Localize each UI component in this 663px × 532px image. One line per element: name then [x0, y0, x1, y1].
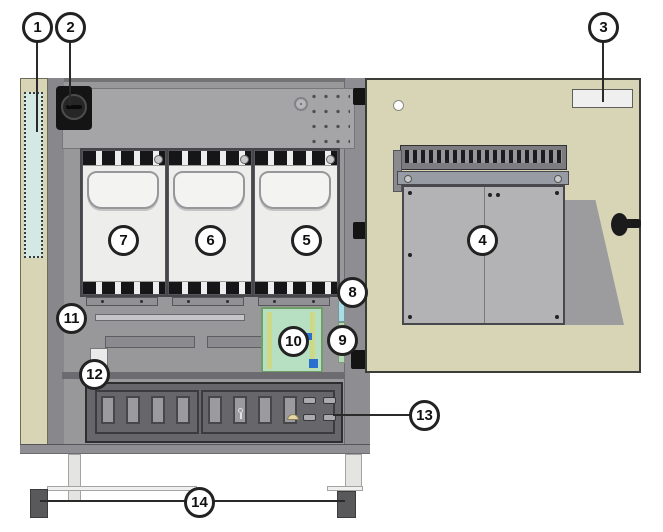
leader-line-2: [69, 42, 71, 106]
door-hole-icon: [393, 100, 404, 111]
callout-12: 12: [79, 359, 110, 390]
breaker-slot: [126, 396, 140, 424]
callout-2: 2: [55, 12, 86, 43]
main-switch-knob-icon: [61, 94, 87, 120]
callout-9: 9: [327, 325, 358, 356]
door-box-vent: [400, 145, 567, 170]
breaker-slot: [176, 396, 190, 424]
breaker-slot: [151, 396, 165, 424]
breaker-slot: [258, 396, 272, 424]
screw-icon: [496, 193, 500, 197]
module-vent-bottom: [255, 281, 337, 294]
screw-icon: [555, 315, 559, 319]
leader-line-13: [333, 414, 411, 416]
breaker-slot: [208, 396, 222, 424]
door-box-rail: [397, 171, 569, 185]
callout-3: 3: [588, 12, 619, 43]
led-dot-grid: [306, 87, 350, 145]
module-handle: [259, 171, 331, 209]
callout-5: 5: [291, 225, 322, 256]
busbar: [95, 314, 245, 321]
callout-11: 11: [56, 303, 87, 334]
module-5: [254, 150, 338, 295]
callout-1: 1: [22, 12, 53, 43]
connector-port: [323, 397, 336, 404]
callout-10: 10: [278, 326, 309, 357]
screw-icon: [488, 193, 492, 197]
module-vent-top: [83, 151, 165, 166]
mounting-rail: [86, 297, 158, 306]
module-vent-bottom: [169, 281, 251, 294]
pcb-chip: [309, 359, 318, 368]
connector-port: [303, 397, 316, 404]
module-handle: [173, 171, 245, 209]
callout-14: 14: [184, 487, 215, 518]
dome-icon: [287, 414, 299, 420]
module-vent-top: [169, 151, 251, 166]
main-switch: [56, 86, 92, 130]
mounting-rail: [172, 297, 244, 306]
module-vent-bottom: [83, 281, 165, 294]
callout-7: 7: [108, 225, 139, 256]
connector-port: [303, 414, 316, 421]
module-7: [82, 150, 166, 295]
hinge-icon: [351, 350, 366, 369]
filter-region-dashed: [24, 92, 43, 258]
callout-4: 4: [467, 225, 498, 256]
cabinet-foot-right: [337, 491, 356, 518]
pcb-connector-strip: [267, 312, 272, 369]
module-vent-top: [255, 151, 337, 166]
callout-13: 13: [409, 400, 440, 431]
leader-line-3: [602, 42, 604, 102]
screw-icon: [408, 253, 412, 257]
distribution-panel: [85, 382, 343, 443]
screw-icon: [555, 191, 559, 195]
mounting-rail: [258, 297, 330, 306]
leader-line-1: [36, 42, 38, 132]
cable-slot: [105, 336, 195, 348]
breaker-slot: [101, 396, 115, 424]
callout-6: 6: [195, 225, 226, 256]
door-lock-bar-icon: [625, 219, 641, 228]
screw-icon: [408, 315, 412, 319]
cabinet-foot-left: [30, 489, 48, 518]
module-6: [168, 150, 252, 295]
screw-icon: [408, 191, 412, 195]
stand-ledge-left: [47, 486, 197, 491]
cabinet-diagram: 1 2 3 4 5 6 7 8 9 10 11 12 13 14: [0, 0, 663, 532]
key-icon: [238, 408, 243, 413]
stand-upright-right: [345, 454, 362, 488]
stand-upright-left: [68, 454, 81, 502]
cabinet-base: [20, 444, 370, 454]
callout-8: 8: [337, 277, 368, 308]
module-handle: [87, 171, 159, 209]
